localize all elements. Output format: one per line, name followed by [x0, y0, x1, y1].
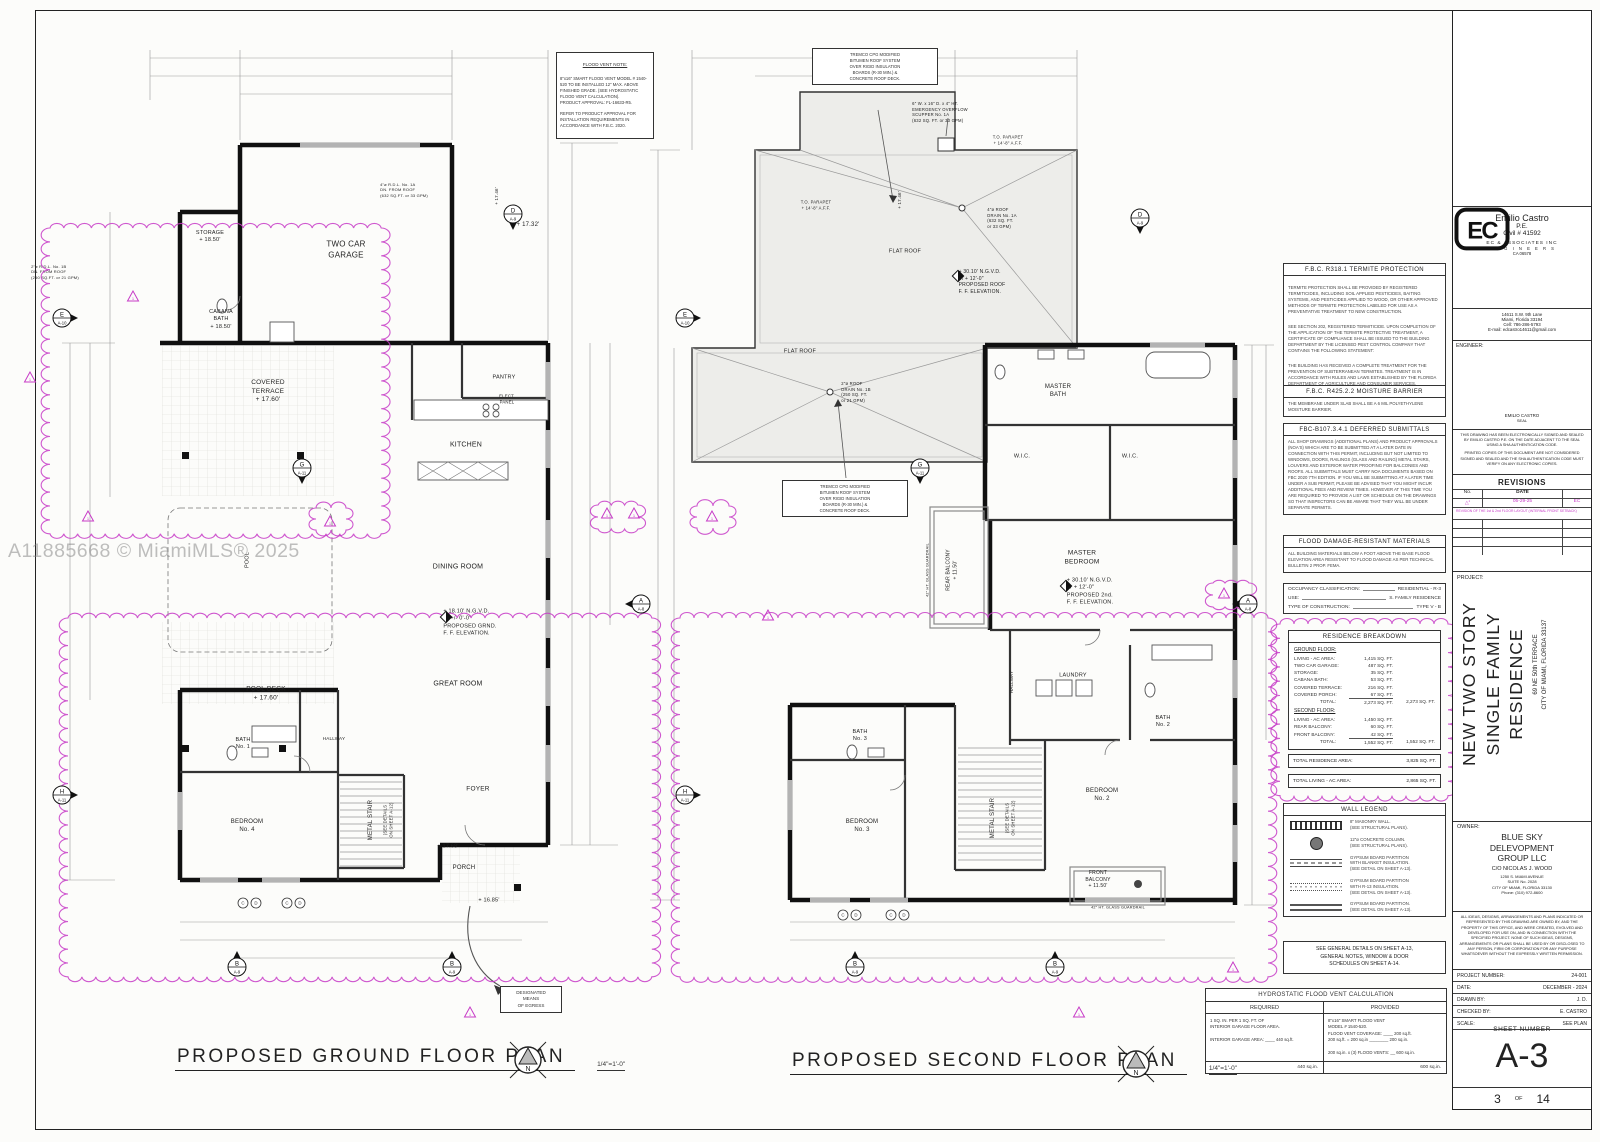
- legend-symbol-icon: [1290, 859, 1342, 867]
- metal-stair-second-note: (SEE DETAILS ON SHEET A-12): [1004, 800, 1015, 835]
- roof-ff-elevation: + 30.10' N.G.V.D. or + 12'-0" PROPOSED R…: [959, 269, 1006, 295]
- metal-stair-ground-note: (SEE DETAILS ON SHEET A-12): [382, 802, 393, 837]
- bath-3-label: BATH No. 3: [852, 729, 867, 744]
- hallway-ground-label: HALLWAY: [323, 736, 346, 742]
- termite-p2: SEE SECTION 202, REGISTERED TERMITICIDE.…: [1288, 324, 1441, 354]
- occupancy-row: OCCUPANCY CLASSIFICATION: RESIDENTIAL - …: [1284, 585, 1445, 594]
- see-general-note: SEE GENERAL DETAILS ON SHEET A-13, GENER…: [1283, 941, 1446, 974]
- rear-balcony-label: REAR BALCONY + 11.50': [945, 549, 958, 591]
- egress-note: DESIGNATED MEANS OF EGRESS: [500, 986, 562, 1013]
- legend-item: GYPSUM BOARD PARTITION WITH R-13 INSULAT…: [1284, 875, 1445, 898]
- residence-breakdown: RESIDENCE BREAKDOWN GROUND FLOOR: LIVING…: [1288, 630, 1441, 750]
- hydro-provided-total: 600 sq.in.: [1324, 1062, 1446, 1073]
- roof-drain-1b: [827, 389, 833, 395]
- sheet-number: A-3: [1453, 1037, 1591, 1076]
- legend-item: GYPSUM BOARD PARTITION. (SEE DETAIL ON S…: [1284, 898, 1445, 916]
- ground-dimension-lines: [62, 50, 618, 958]
- roof-drain-1a: [959, 205, 965, 211]
- second-ff-elevation: + 30.10' N.G.V.D. or + 12'-0" PROPOSED 2…: [1067, 578, 1113, 607]
- storage-label: STORAGE + 18.50': [196, 230, 224, 245]
- front-guardrail-note: 42" HT. GLASS GUARDRAIL: [1091, 906, 1145, 911]
- laundry-label: LAUNDRY: [1059, 672, 1087, 679]
- breakdown-row: STORAGE: 35 SQ. FT.: [1294, 669, 1435, 676]
- hydro-col-provided: PROVIDED: [1324, 1002, 1446, 1014]
- mls-watermark: A11885668 © MiamiMLS® 2025: [8, 540, 300, 563]
- flood-materials-body: ALL BUILDING MATERIALS BELOW A FOOT ABOV…: [1284, 548, 1445, 572]
- rear-guardrail-note: 42" HT. GLASS GUARDRAIL: [926, 543, 931, 597]
- hydro-title: HYDROSTATIC FLOOD VENT CALCULATION: [1206, 989, 1446, 1002]
- breakdown-row: COVERED PORCH: 67 SQ. FT.: [1294, 691, 1435, 698]
- bedroom-3-label: BEDROOM No. 3: [846, 819, 878, 835]
- hallway-second-label: HALLWAY: [1009, 671, 1015, 694]
- ec-logo-icon: EC: [1453, 207, 1511, 251]
- occupancy-label: USE:: [1288, 596, 1299, 601]
- deferred-note-title: FBC-B107.3.4.1 DEFERRED SUBMITTALS: [1284, 424, 1445, 436]
- svg-text:N: N: [525, 1066, 530, 1073]
- occupancy-box: OCCUPANCY CLASSIFICATION: RESIDENTIAL - …: [1283, 583, 1446, 614]
- second-total-row: TOTAL: 1,552 SQ. FT. 1,552 SQ. FT.: [1294, 738, 1435, 746]
- legend-item: GYPSUM BOARD PARTITION WITH BLANKET INSU…: [1284, 852, 1445, 875]
- owner-label: OWNER:: [1453, 822, 1591, 832]
- legal-section: ALL IDEAS, DESIGNS, ARRANGEMENTS AND PLA…: [1453, 911, 1591, 969]
- page-footer: 3 OF 14: [1453, 1087, 1591, 1109]
- wic-left-label: W.I.C.: [1014, 453, 1030, 460]
- hydro-col-required: REQUIRED: [1206, 1002, 1324, 1014]
- project-address-vertical: 69 NE 50th TERRACE CITY OF MIAMI, FLORID…: [1532, 557, 1550, 772]
- elev-1768-label: + 17.68': [437, 843, 458, 850]
- breakdown-row: CABANA BATH: 53 SQ. FT.: [1294, 676, 1435, 683]
- revision-date: 05-29-25: [1483, 499, 1563, 507]
- great-room-label: GREAT ROOM: [433, 679, 482, 688]
- project-title-line1: NEW TWO STORY: [1458, 563, 1482, 805]
- rdl-1a-note: 4"ø R.D.L. No. 1A DN. FROM ROOF (632 SQ.…: [380, 182, 428, 198]
- tremco-note-2: TREMCO CPG MODIFIED BITUMEN ROOF SYSTEM …: [782, 480, 908, 517]
- revisions-title: REVISIONS: [1453, 475, 1591, 489]
- engineer-addr4: E-mail: edcastro14611@gmail.com: [1453, 327, 1591, 332]
- occupancy-value: RESIDENTIAL - R-3: [1398, 587, 1441, 592]
- pool-deck-label: POOL DECK + 17.60': [246, 685, 286, 702]
- kitchen-label: KITCHEN: [450, 440, 482, 449]
- flood-vent-note-body: 8"x16" SMART FLOOD VENT MODEL # 1540-520…: [560, 76, 650, 129]
- project-address-line2: CITY OF MIAMI, FLORIDA 33137: [1541, 557, 1550, 772]
- info-row: PROJECT NUMBER: 24-001: [1453, 970, 1591, 982]
- legend-symbol-icon: [1290, 904, 1342, 911]
- egress-arrow: [468, 906, 500, 986]
- total-residence-area: TOTAL RESIDENCE AREA: 3,825 SQ. FT.: [1288, 754, 1441, 768]
- revision-note: REVISION OF THE 1st & 2nd FLOOR LAYOUT (…: [1453, 507, 1591, 519]
- flood-vent-note-title: FLOOD VENT NOTE:: [560, 62, 650, 68]
- tremco-note-1: TREMCO CPG MODIFIED BITUMEN ROOF SYSTEM …: [812, 48, 938, 85]
- flood-materials-note: FLOOD DAMAGE-RESISTANT MATERIALS ALL BUI…: [1283, 535, 1446, 573]
- esign-section: THIS DRAWING HAS BEEN ELECTRONICALLY SIG…: [1453, 429, 1591, 474]
- pantry-label: PANTRY: [492, 374, 515, 381]
- breakdown-row: FRONT BALCONY: 42 SQ. FT.: [1294, 731, 1435, 738]
- sheet-number-section: SHEET NUMBER A-3: [1453, 1022, 1591, 1087]
- elev-1685-label: + 16.85': [478, 897, 499, 904]
- flood-vent-note: FLOOD VENT NOTE: 8"x16" SMART FLOOD VENT…: [556, 52, 654, 139]
- info-row: CHECKED BY: E. CASTRO: [1453, 1006, 1591, 1018]
- esign-note-2: PRINTED COPIES OF THIS DOCUMENT ARE NOT …: [1458, 451, 1586, 466]
- revision-row-1: △1 05-29-25 EC: [1453, 498, 1591, 507]
- second-plan-title-row: PROPOSED SECOND FLOOR PLAN 1/4"=1'-0": [790, 1050, 1237, 1075]
- engineer-label: ENGINEER:: [1453, 341, 1591, 351]
- occupancy-value: S. FAMILY RESIDENCE: [1389, 596, 1441, 601]
- owner-name: BLUE SKY DELEVOPMENT GROUP LLC: [1453, 832, 1591, 864]
- roof-drain-1a-note: 4"ø ROOF DRAIN No. 1A (632 SQ. FT. or 33…: [987, 207, 1016, 229]
- hydro-flood-vent-table: HYDROSTATIC FLOOD VENT CALCULATION REQUI…: [1205, 988, 1447, 1074]
- page-total: 14: [1536, 1092, 1549, 1106]
- foyer-label: FOYER: [466, 786, 489, 795]
- legend-item: 12"ø CONCRETE COLUMN. (SEE STRUCTURAL PL…: [1284, 834, 1445, 852]
- revisions-section: REVISIONS No. DATE △1 05-29-25 EC REVISI…: [1453, 474, 1591, 571]
- legend-symbol-icon: [1290, 883, 1342, 891]
- legend-symbol-icon: [1290, 821, 1342, 830]
- moisture-note-title: F.B.C. R425.2.2 MOISTURE BARRIER: [1284, 386, 1445, 398]
- elev-1746-ground-label: + 17.46': [494, 187, 500, 205]
- front-balcony-label: FRONT BALCONY + 11.50': [1085, 870, 1110, 890]
- hydro-provided-text: 8"x16" SMART FLOOD VENT MODEL # 1540-520…: [1324, 1014, 1446, 1062]
- parapet-note-2: T.O. PARAPET + 14'-8" A.F.F.: [801, 199, 831, 210]
- project-title-vertical: NEW TWO STORY SINGLE FAMILY RESIDENCE: [1458, 563, 1529, 805]
- total-living-area: TOTAL LIVING - AC AREA: 2,865 SQ. FT.: [1288, 774, 1441, 788]
- termite-p3: THE BUILDING HAS RECEIVED A COMPLETE TRE…: [1288, 363, 1441, 387]
- scupper-note: 6" W. x 16" D. x 4" HT. EMERGENCY OVERFL…: [912, 101, 968, 123]
- engineer-identity-section: EC Emilio Castro P.E. Civil # 41592 EC &…: [1453, 206, 1591, 308]
- svg-text:N: N: [1133, 1070, 1138, 1077]
- owner-address: 1250 S. MIAMI AVENUE SUITE No. 2028 CITY…: [1453, 874, 1591, 896]
- parapet-note-1: T.O. PARAPET + 14'-8" A.F.F.: [993, 134, 1023, 145]
- owner-co: C/O NICOLAS J. WOOD: [1453, 866, 1591, 872]
- ground-plan-title-row: PROPOSED GROUND FLOOR PLAN 1/4"=1'-0": [175, 1046, 625, 1071]
- occupancy-label: OCCUPANCY CLASSIFICATION:: [1288, 587, 1360, 592]
- wall-legend-title: WALL LEGEND: [1284, 804, 1445, 816]
- elev-1746-second-label: + 17.46': [897, 191, 903, 209]
- occupancy-row: TYPE OF CONSTRUCTION: TYPE V - B: [1284, 603, 1445, 612]
- bedroom-2-label: BEDROOM No. 2: [1086, 788, 1118, 804]
- occupancy-row: USE: S. FAMILY RESIDENCE: [1284, 594, 1445, 603]
- roof-drain-1b-note: 2"ø ROOF DRAIN No. 1B (250 SQ. FT. or 21…: [841, 381, 870, 403]
- second-plan-scale: 1/4"=1'-0": [1209, 1065, 1237, 1075]
- second-floor-heading: SECOND FLOOR:: [1294, 708, 1435, 714]
- bedroom-4-label: BEDROOM No. 4: [231, 819, 263, 835]
- balcony-column: [1134, 880, 1142, 888]
- flood-materials-title: FLOOD DAMAGE-RESISTANT MATERIALS: [1284, 536, 1445, 548]
- elect-panel-label: ELECT. PANEL: [499, 393, 515, 404]
- project-address-line1: 69 NE 50th TERRACE: [1532, 557, 1541, 772]
- bath-1-label: BATH No. 1: [235, 737, 250, 752]
- north-arrow-icon: N: [508, 1040, 548, 1080]
- page-number: 3: [1494, 1092, 1501, 1106]
- firm-ca: CA 06578: [1453, 251, 1591, 256]
- covered-terrace-label: COVERED TERRACE + 17.60': [251, 379, 285, 405]
- master-bath-label: MASTER BATH: [1045, 384, 1071, 400]
- termite-p1: TERMITE PROTECTION SHALL BE PROVIDED BY …: [1288, 285, 1441, 315]
- legend-item: 8" MASONRY WALL. (SEE STRUCTURAL PLANS).: [1284, 816, 1445, 834]
- sheet-number-label: SHEET NUMBER: [1453, 1022, 1591, 1033]
- breakdown-row: LIVING - AC AREA: 1,450 SQ. FT.: [1294, 716, 1435, 723]
- breakdown-row: TWO CAR GARAGE: 487 SQ. FT.: [1294, 662, 1435, 669]
- engineer-seal-section: ENGINEER: EMILIO CASTRO SEAL: [1453, 340, 1591, 429]
- breakdown-title: RESIDENCE BREAKDOWN: [1289, 631, 1440, 643]
- porch-label: PORCH: [453, 865, 476, 873]
- metal-stair-second-label: METAL STAIR: [990, 798, 998, 838]
- info-row: DRAWN BY: J. D.: [1453, 994, 1591, 1006]
- title-block: EC Emilio Castro P.E. Civil # 41592 EC &…: [1452, 10, 1592, 1110]
- dining-room-label: DINING ROOM: [433, 562, 483, 571]
- drawing-sheet: STORAGE + 18.50'CABANA BATH + 18.50'TWO …: [0, 0, 1600, 1142]
- second-floor-roof: [692, 92, 1077, 478]
- legend-symbol-icon: [1290, 837, 1342, 849]
- moisture-note-body: THE MEMBRANE UNDER SLAB SHALL BE A 6 MIL…: [1284, 398, 1445, 416]
- wic-right-label: W.I.C.: [1122, 453, 1138, 460]
- ground-ff-elevation: + 18.10' N.G.V.D. or +/- 0'-0" PROPOSED …: [443, 609, 496, 638]
- owner-section: OWNER: BLUE SKY DELEVOPMENT GROUP LLC C/…: [1453, 821, 1591, 911]
- occupancy-value: TYPE V - B: [1416, 605, 1441, 610]
- flat-roof-label-2: FLAT ROOF: [784, 348, 816, 355]
- cabana-bath-label: CABANA BATH + 18.50': [209, 309, 233, 331]
- deferred-submittals-note: FBC-B107.3.4.1 DEFERRED SUBMITTALS ALL S…: [1283, 423, 1446, 515]
- flat-roof-label-1: FLAT ROOF: [889, 248, 921, 255]
- termite-protection-note: F.B.C. R318.1 TERMITE PROTECTION TERMITE…: [1283, 263, 1446, 400]
- north-arrow-icon: N: [1116, 1044, 1156, 1084]
- elev-1732-label: + 17.32': [517, 222, 540, 230]
- occupancy-label: TYPE OF CONSTRUCTION:: [1288, 605, 1350, 610]
- deferred-note-body: ALL SHOP DRAWINGS (ADDITIONAL PLANS) AND…: [1284, 436, 1445, 514]
- moisture-barrier-note: F.B.C. R425.2.2 MOISTURE BARRIER THE MEM…: [1283, 385, 1446, 417]
- svg-text:EC: EC: [1467, 218, 1498, 245]
- master-bedroom-label: MASTER BEDROOM: [1065, 549, 1100, 566]
- esign-note-1: THIS DRAWING HAS BEEN ELECTRONICALLY SIG…: [1458, 433, 1586, 448]
- revision-by: EC: [1563, 499, 1591, 507]
- page-of: OF: [1515, 1096, 1523, 1102]
- metal-stair-ground-label: METAL STAIR: [368, 800, 376, 840]
- legal-text: ALL IDEAS, DESIGNS, ARRANGEMENTS AND PLA…: [1458, 915, 1586, 958]
- two-car-garage-label: TWO CAR GARAGE: [326, 239, 365, 260]
- ground-total-row: TOTAL: 2,273 SQ. FT. 2,273 SQ. FT.: [1294, 698, 1435, 706]
- info-row: DATE: DECEMBER - 2024: [1453, 982, 1591, 994]
- revision-triangle-icon: △1: [1453, 499, 1483, 507]
- revisions-col-no: No.: [1453, 490, 1483, 498]
- ground-plan-scale: 1/4"=1'-0": [597, 1061, 625, 1071]
- info-rows-section: PROJECT NUMBER: 24-001 DATE: DECEMBER - …: [1453, 969, 1591, 1030]
- revisions-col-date: DATE: [1483, 490, 1563, 498]
- ground-floor-heading: GROUND FLOOR:: [1294, 647, 1435, 653]
- seal-word: SEAL: [1453, 418, 1591, 423]
- rdl-1b-note: 2"ø R.D.L. No. 1B DN. FROM ROOF (250 SQ.…: [31, 264, 79, 280]
- bath-2-label: BATH No. 2: [1155, 715, 1170, 730]
- project-title-line2: SINGLE FAMILY RESIDENCE: [1482, 563, 1529, 805]
- termite-note-title: F.B.C. R318.1 TERMITE PROTECTION: [1284, 264, 1445, 276]
- engineer-address-section: 14611 S.W. 9th Lane Miami, Florida 33194…: [1453, 308, 1591, 340]
- breakdown-row: LIVING - AC AREA: 1,415 SQ. FT.: [1294, 655, 1435, 662]
- overflow-scupper: [938, 138, 954, 151]
- breakdown-row: COVERED TERRACE: 216 SQ. FT.: [1294, 684, 1435, 691]
- breakdown-row: REAR BALCONY: 60 SQ. FT.: [1294, 723, 1435, 730]
- wall-legend: WALL LEGEND 8" MASONRY WALL. (SEE STRUCT…: [1283, 803, 1446, 917]
